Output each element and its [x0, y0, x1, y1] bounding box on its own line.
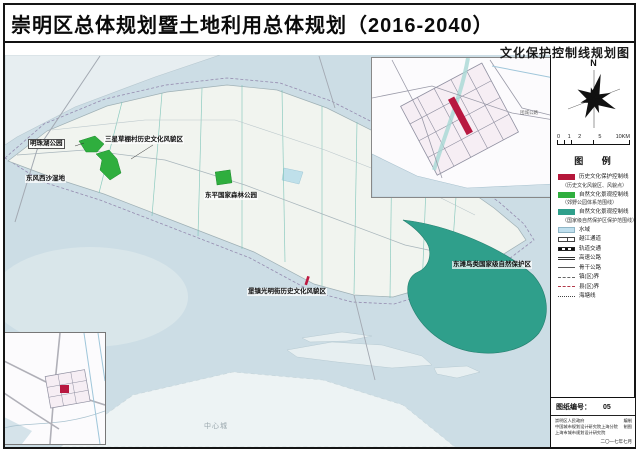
inset-baozhen-town: [5, 332, 106, 445]
map-subtitle: 文化保护控制线规划图: [500, 44, 630, 61]
drawing-number-label: 图纸编号：: [556, 402, 591, 412]
date-label: 二〇一七年七月: [551, 438, 635, 447]
label-dongtan-reserve: 东滩鸟类国家级自然保护区: [452, 261, 532, 269]
red-swatch-icon: [558, 174, 575, 180]
town-boundary-symbol-icon: [558, 277, 575, 278]
legend-item-rail: 轨道交通: [558, 246, 631, 252]
inset-road-label: 团城公路: [520, 110, 538, 116]
inset-bl-historic-patch: [60, 385, 69, 393]
page-title: 崇明区总体规划暨土地利用总体规划（2016-2040）: [11, 9, 494, 38]
legend-subitem-country-park: （郊野公园体系范围线）: [562, 200, 631, 206]
label-dongfeng-xisha: 东风西沙湿地: [25, 175, 66, 183]
compass-rose-icon: [563, 68, 625, 130]
legend-subitem-historic: （历史文化风貌区、风貌点）: [562, 183, 631, 189]
legend-item-road: 骨干公路: [558, 265, 631, 271]
scale-bar: 0 1 2 5 10KM: [556, 134, 631, 145]
legend-item-tunnel: 越江通道: [558, 236, 631, 242]
legend-item-town-boundary: 镇(区)界: [558, 274, 631, 280]
legend-item-seawall: 海塘线: [558, 293, 631, 299]
label-central-city: 中心城: [203, 423, 229, 431]
plan-sheet: 明珠湖公园 东风西沙湿地 三星草棚村历史文化风貌区 东平国家森林公园 堡镇光明街…: [0, 0, 639, 453]
seawall-symbol-icon: [558, 296, 575, 297]
credits-block: 崇明区人民政府 编制 中国城市规划设计研究院上海分院 制图 上海市城市规划设计研…: [551, 416, 635, 438]
legend-header: 图 例: [562, 154, 631, 167]
inset-chengqiao-town: 团城公路: [371, 57, 555, 198]
teal-swatch-icon: [558, 209, 575, 215]
highway-symbol-icon: [558, 257, 575, 260]
legend-item-highway: 高速公路: [558, 255, 631, 261]
scale-bar-line: [557, 140, 630, 145]
legend-panel: N 0 1 2 5 10KM: [550, 55, 634, 447]
legend-subitem-reserve: （国家级自然保护区保护范围线）: [562, 218, 631, 224]
drawing-number-value: 05: [603, 404, 611, 411]
title-band: 崇明区总体规划暨土地利用总体规划（2016-2040） 文化保护控制线规划图: [5, 5, 634, 55]
rail-symbol-icon: [558, 247, 575, 251]
legend-item-nature-green: 自然文化景观控制线: [558, 192, 631, 198]
legend-item-nature-teal: 自然文化景观控制线: [558, 209, 631, 215]
water-swatch-icon: [558, 227, 575, 233]
label-sanxing-historic: 三星草棚村历史文化风貌区: [104, 136, 184, 144]
credit-line-supdri: 上海市城市规划设计研究院: [555, 430, 632, 436]
inset-tr-graphic: [372, 58, 554, 197]
legend-item-historic-line: 历史文化保护控制线: [558, 174, 631, 180]
title-block: 图纸编号： 05 崇明区人民政府 编制 中国城市规划设计研究院上海分院 制图 上…: [551, 397, 635, 447]
label-mingzhu-lake-park: 明珠湖公园: [28, 139, 65, 149]
drawing-number-row: 图纸编号： 05: [551, 398, 635, 416]
tunnel-symbol-icon: [558, 237, 575, 242]
legend-item-water: 水域: [558, 227, 631, 233]
green-swatch-icon: [558, 192, 575, 198]
title-divider: [5, 41, 634, 43]
legend-item-county-boundary: 县(区)界: [558, 284, 631, 290]
inset-bl-graphic: [5, 333, 105, 444]
county-boundary-symbol-icon: [558, 286, 575, 287]
label-dongping-forest: 东平国家森林公园: [204, 192, 258, 200]
label-baozhen-historic: 堡镇光明街历史文化风貌区: [247, 288, 327, 296]
road-symbol-icon: [558, 267, 575, 268]
